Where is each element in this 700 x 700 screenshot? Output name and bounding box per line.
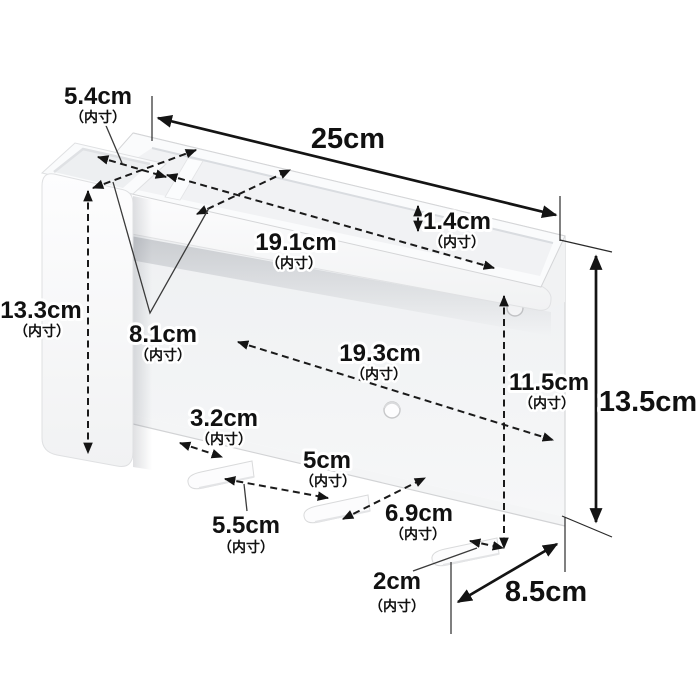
dim-label: 2cm [373, 568, 421, 595]
dim-label: 8.1cm [129, 321, 197, 348]
dim-note: （内寸） [369, 598, 425, 614]
dim-label: 13.3cm [0, 297, 81, 324]
screw-hole-bottom [384, 402, 400, 418]
dim-label: 19.3cm [339, 340, 420, 367]
dim-label: 13.5cm [599, 386, 697, 418]
dim-note: （内寸） [300, 473, 356, 489]
dim-note: （内寸） [135, 347, 191, 363]
dim-note: （内寸） [218, 539, 274, 555]
dim-label: 5cm [303, 447, 351, 474]
dim-label: 3.2cm [190, 405, 258, 432]
dim-note: （内寸） [519, 395, 575, 411]
dim-note: （内寸） [390, 526, 446, 542]
hook-2 [304, 495, 370, 523]
dim-label: 8.5cm [505, 576, 587, 608]
dim-note: （内寸） [351, 366, 407, 382]
dim-label: 1.4cm [423, 208, 491, 235]
dimension-diagram: 25cm 5.4cm （内寸） 8.1cm （内寸） 19.1cm （内寸） 1… [0, 0, 700, 700]
dim-label: 5.4cm [64, 83, 132, 110]
dim-note: （内寸） [266, 255, 322, 271]
dim-note: （内寸） [14, 323, 70, 339]
dim-label: 25cm [311, 123, 385, 155]
dim-note: （内寸） [196, 431, 252, 447]
dim-label: 6.9cm [385, 500, 453, 527]
dim-tray-inner-height: 1.4cm （内寸） [418, 206, 491, 250]
dim-note: （内寸） [70, 109, 126, 125]
dim-label: 19.1cm [255, 229, 336, 256]
dim-overall-depth: 8.5cm [451, 517, 587, 634]
dim-label: 5.5cm [212, 512, 280, 539]
diagram-canvas: 25cm 5.4cm （内寸） 8.1cm （内寸） 19.1cm （内寸） 1… [0, 0, 700, 700]
dim-hook-length: 5.5cm （内寸） [212, 484, 280, 555]
dim-note: （内寸） [429, 234, 485, 250]
dim-label: 11.5cm [509, 369, 589, 396]
